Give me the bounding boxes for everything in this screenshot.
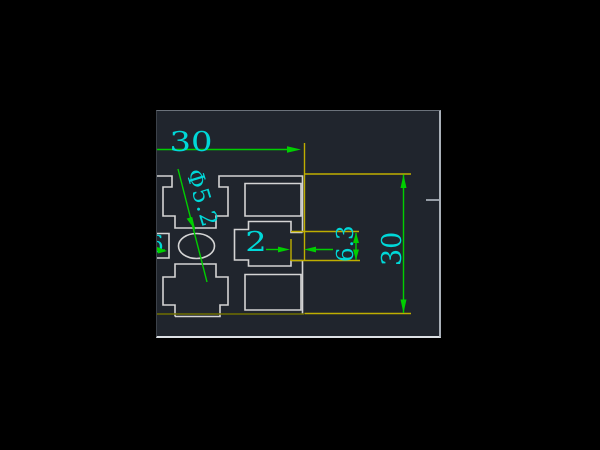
arrowhead-right-icon (287, 146, 301, 152)
arrowhead-down-icon (401, 300, 407, 314)
dim-text-width-top: 30 (170, 127, 213, 158)
arrowhead-up-icon (401, 175, 407, 189)
center-hole (179, 234, 215, 259)
profile-bottom-slot (163, 264, 228, 317)
profile-chamber-bottom (245, 275, 301, 311)
arrowhead-left-icon (304, 247, 316, 253)
arrowhead-right-icon (278, 247, 290, 253)
dim-text-height-right: 30 (377, 232, 408, 266)
dimension-slot-opening: 6.3 (333, 225, 359, 262)
dim-text-lip: 2 (245, 227, 266, 258)
dim-text-hole: Φ5.2 (180, 166, 222, 230)
profile-top-slot (157, 176, 303, 233)
cad-screen: { "viewport": { "page_background": "#000… (0, 0, 600, 450)
cad-drawing: 30 Φ5.2 2 6.3 30 (157, 111, 439, 336)
drawing-viewport[interactable]: 30 Φ5.2 2 6.3 30 (156, 110, 441, 338)
dim-text-slot-opening: 6.3 (333, 225, 359, 262)
profile-outline (157, 176, 303, 317)
dimension-clipped-left: 6 (157, 232, 167, 258)
dimension-width-top: 30 (157, 127, 301, 158)
dimension-height-right: 30 (377, 175, 408, 314)
dim-text-clipped-fragment: 6 (157, 232, 164, 258)
profile-chamber-top (245, 184, 301, 217)
